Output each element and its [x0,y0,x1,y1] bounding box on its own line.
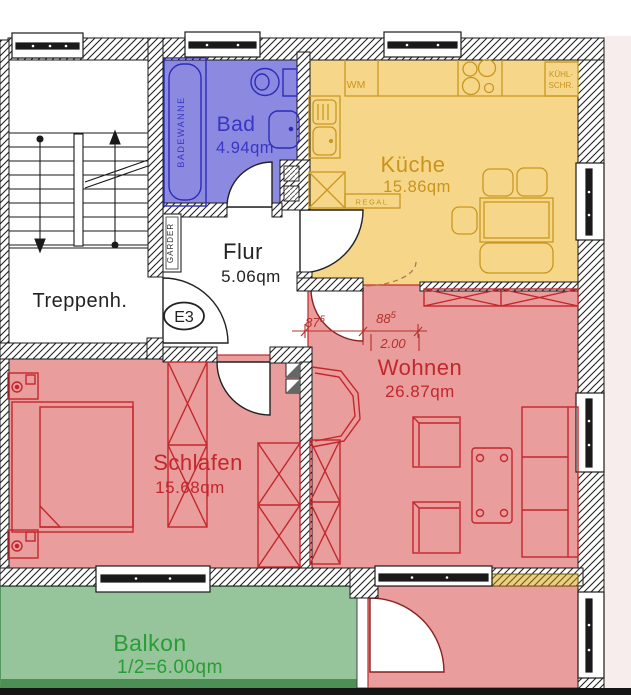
wm-label: WM [347,79,366,91]
bad-area: 4.94qm [216,139,274,157]
wall-bad-bottom-right [272,203,282,217]
wall-entrance-post [147,338,163,359]
wall-flur-wohnen [297,278,363,291]
window-neighbor-right [578,592,604,678]
right-margin [604,36,631,688]
wall-treppenhaus-right [148,38,163,277]
wohnen-area: 26.87qm [385,382,455,401]
flur-area: 5.06qm [221,267,281,286]
window-wohnen-bottom [375,566,492,586]
stair-handrail [74,134,83,246]
staircase [9,131,148,252]
balkon-label: Balkon [113,630,186,656]
kueche-area: 15.86qm [383,178,451,196]
stair-steps-left [9,147,74,245]
schlafen-label: Schlafen [153,450,243,475]
fridge-label-2: SCHR. [549,81,574,90]
bad-label: Bad [217,113,256,136]
shaft-box-2 [284,186,299,201]
wall-schlafen-door-post [270,347,312,363]
wall-bottom-corner [350,568,378,598]
regal-label: REGAL [356,198,389,207]
badewanne-label: BADEWANNE [176,96,186,167]
sink-drain [289,127,292,130]
window-bad [185,32,260,57]
treppenhaus-label: Treppenh. [33,290,128,312]
fridge-label-1: KÜHL- [549,70,573,79]
garderobe-label: GARDER [166,223,175,263]
floor-plan: Treppenh. Flur 5.06qm Bad 4.94qm BADEWAN… [0,0,631,695]
entrance-label: E3 [174,309,194,326]
wohnen-label: Wohnen [378,355,463,380]
stair-arrow-down-dot [37,136,43,142]
wall-bottom-yellow [492,574,578,586]
window-wohnen-right [576,393,604,472]
stair-cut-line [85,160,148,188]
kueche-label: Küche [381,152,446,177]
dim-lintel: 2.00 [379,336,406,351]
lamp-top-dot [15,385,18,388]
window-kueche-top [384,32,461,57]
balkon-edge [1,679,357,688]
flur-label: Flur [223,239,263,264]
sink-basin-drain [330,140,333,143]
wall-treppenhaus-bottom [0,343,163,359]
wall-left [0,40,9,568]
schlafen-area: 15.68qm [155,478,225,497]
window-treppenhaus [12,33,83,58]
shaft-box-1 [284,166,299,181]
lamp-bottom-dot [15,544,18,547]
window-schlafen-balkon [96,566,210,592]
wall-bad-kueche [297,52,310,162]
floor-plan-drawing: Treppenh. Flur 5.06qm Bad 4.94qm BADEWAN… [0,0,631,695]
window-kueche-right [576,163,604,240]
wall-flur-bottom [163,347,217,362]
photo-bottom-edge [0,688,631,695]
balkon-area: 1/2=6.00qm [117,657,223,678]
stair-arrow-up-dot [112,242,118,248]
